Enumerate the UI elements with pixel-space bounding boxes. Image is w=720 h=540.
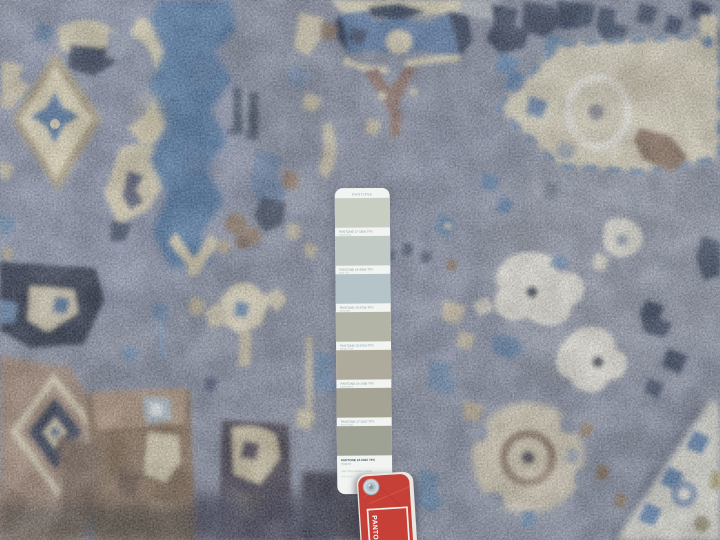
- svg-text:color guide: color guide: [341, 475, 353, 478]
- svg-text:PANTONE: PANTONE: [352, 192, 373, 196]
- svg-text:PANTONE 16-5815 TPX: PANTONE 16-5815 TPX: [341, 458, 376, 462]
- svg-text:Seagrass: Seagrass: [341, 463, 352, 466]
- svg-text:PANTONE fashion + home: PANTONE fashion + home: [341, 469, 372, 473]
- svg-text:PANTONE: PANTONE: [370, 515, 379, 540]
